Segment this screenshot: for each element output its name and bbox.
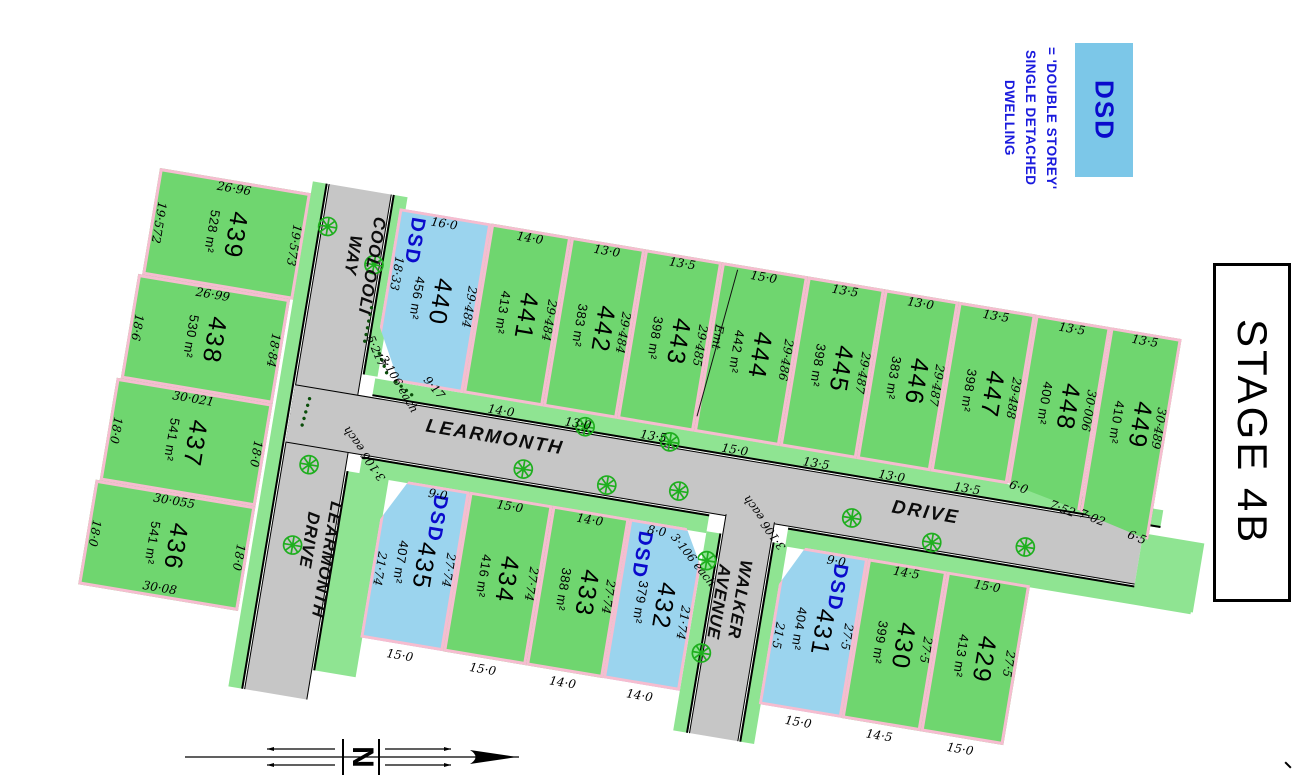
legend-dsd-label: DSD: [1089, 80, 1120, 141]
lot-number: 437: [178, 418, 211, 469]
lot-number: 441: [509, 291, 542, 342]
tree-icon: [919, 530, 944, 555]
lot-label: 441 413 m²: [492, 288, 541, 342]
lot-number: 430: [887, 621, 920, 672]
stage-title: STAGE 4B: [1228, 319, 1276, 545]
north-letter: N: [346, 746, 379, 768]
tree-icon: [511, 456, 536, 481]
plan-area: ●●●●●● ●●●● ●●●● ●●●●● COOLOOLI WAY LEAR…: [160, 168, 161, 169]
lot-label: 440 456 m²: [407, 274, 456, 328]
tree-icon: [666, 478, 691, 503]
lot-number: 439: [219, 210, 252, 261]
subdivision-plan-canvas: = 'DOUBLE STOREY' SINGLE DETACHED DWELLI…: [0, 0, 1299, 776]
legend-text: = 'DOUBLE STOREY' SINGLE DETACHED DWELLI…: [998, 18, 1061, 218]
lot-label: 437 541 m²: [161, 415, 210, 469]
tree-icon: [1013, 534, 1038, 559]
lot-label: 436 541 m²: [142, 518, 191, 572]
lot-number: 447: [975, 369, 1008, 420]
lot-number: 438: [198, 315, 231, 366]
tree-icon: [689, 640, 714, 665]
lot-label: 432 379 m²: [630, 578, 679, 632]
lot-label: 438 530 m²: [181, 312, 230, 366]
north-arrow: N: [183, 733, 523, 776]
legend-line: DWELLING: [998, 18, 1019, 218]
lot-label: 439 528 m²: [202, 207, 251, 261]
lot-number: 436: [159, 521, 192, 572]
lot-number: 434: [490, 554, 523, 605]
lot-label: 431 404 m²: [789, 604, 838, 658]
lot-label: 444 442 m²: [726, 327, 775, 381]
legend-line: = 'DOUBLE STOREY': [1040, 18, 1061, 218]
lot-number: 440: [423, 276, 456, 327]
lot-label: 448 400 m²: [1034, 379, 1083, 433]
lot-label: 447 398 m²: [959, 366, 1008, 420]
lot-number: 429: [967, 634, 1000, 685]
stage-title-box: STAGE 4B: [1213, 263, 1291, 602]
legend-line: SINGLE DETACHED: [1019, 18, 1040, 218]
lot-label: 446 383 m²: [883, 353, 932, 407]
lot-number: 445: [824, 344, 857, 395]
tree-icon: [296, 452, 321, 477]
lot-label: 434 416 m²: [473, 551, 522, 605]
lot-number: 444: [743, 330, 776, 381]
legend-dsd-swatch: DSD: [1075, 43, 1133, 177]
lot-label: 435 407 m²: [390, 538, 439, 592]
page-corner-mark: [1284, 761, 1291, 768]
lot-label: 430 399 m²: [870, 618, 919, 672]
lot-label: 442 383 m²: [569, 301, 618, 355]
lot-number: 433: [570, 568, 603, 619]
lot-number: 443: [662, 316, 695, 367]
lot-label: 443 398 m²: [645, 313, 694, 367]
tree-icon: [315, 214, 340, 239]
lot-label: 429 413 m²: [951, 631, 1000, 685]
lot-number: 431: [806, 607, 839, 658]
north-arrow-graphic: N: [183, 733, 523, 776]
tree-icon: [839, 505, 864, 530]
lot-number: 435: [407, 540, 440, 591]
lot-number: 432: [647, 580, 680, 631]
lot-label: 433 388 m²: [553, 565, 602, 619]
lot-label: 445 398 m²: [808, 341, 857, 395]
tree-icon: [594, 472, 619, 497]
